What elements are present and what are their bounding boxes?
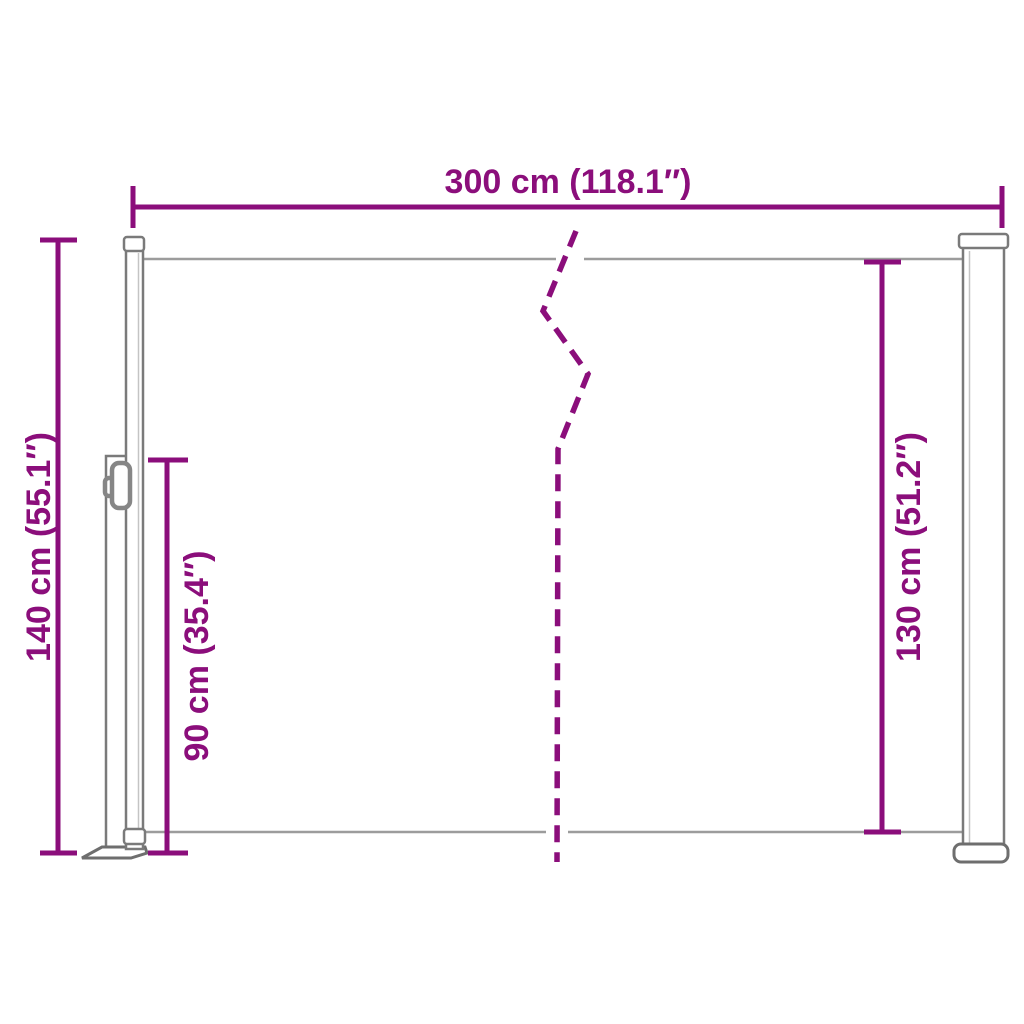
cassette-top-cap (959, 234, 1008, 248)
width-dimension: 300 cm (118.1″) (133, 163, 1002, 228)
wall-plate (106, 456, 128, 848)
support-post (82, 237, 147, 858)
diagram-canvas: 300 cm (118.1″) 140 cm (55.1″) 90 cm (35… (0, 0, 1024, 1024)
fabric-break-line (543, 231, 588, 862)
cassette-bottom-cap (954, 844, 1008, 862)
post-body (126, 250, 143, 849)
post-top-cap (124, 237, 144, 251)
side-awning-dimension-diagram: 300 cm (118.1″) 140 cm (55.1″) 90 cm (35… (0, 0, 1024, 1024)
post-handle (112, 463, 130, 508)
post-height-dimension: 90 cm (35.4″) (148, 460, 216, 853)
width-dimension-label: 300 cm (118.1″) (445, 163, 692, 201)
awning-fabric (143, 231, 963, 862)
cassette-housing (954, 234, 1008, 862)
total-height-dimension: 140 cm (55.1″) (20, 240, 77, 853)
post-height-dimension-label: 90 cm (35.4″) (178, 551, 216, 762)
fabric-height-dimension-label: 130 cm (51.2″) (890, 432, 928, 662)
fabric-height-dimension: 130 cm (51.2″) (864, 262, 928, 832)
total-height-dimension-label: 140 cm (55.1″) (20, 432, 58, 662)
fabric-bottom-connector (124, 829, 145, 844)
